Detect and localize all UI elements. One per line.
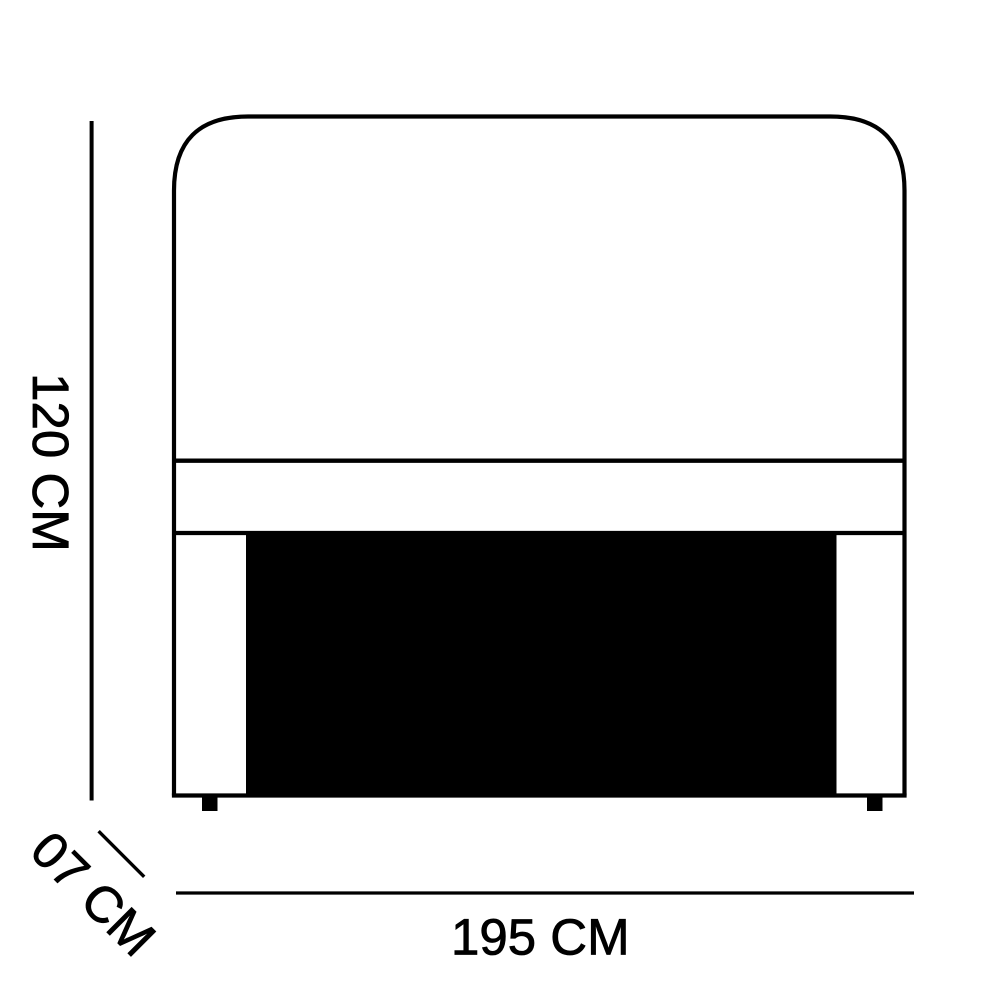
svg-text:07 CM: 07 CM <box>20 821 167 968</box>
svg-text:120 CM: 120 CM <box>22 373 79 552</box>
svg-text:195 CM: 195 CM <box>451 909 630 966</box>
